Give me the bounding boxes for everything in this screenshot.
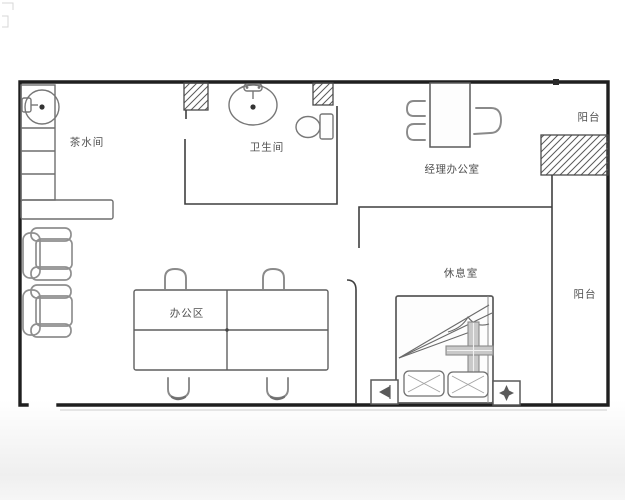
floor-plan-canvas: 茶水间 卫生间 经理办公室 阳台 休息室 阳台 办公区 [0,0,625,500]
chair-icon [165,269,186,289]
chair-icon [267,378,288,398]
office-table [134,290,328,370]
armchair [23,228,72,280]
wall-hatch-block [541,135,608,175]
nightstand-left [371,380,398,404]
scan-artifact [2,3,13,27]
wall-hatch-block [184,83,208,110]
chair-icon [168,378,189,398]
room-label-office-area: 办公区 [170,306,205,321]
lounge-top-wall [359,207,552,248]
chair-icon [407,101,425,116]
chair-icon [474,108,501,134]
chair-icon [407,124,425,140]
lounge-left-wall [347,280,356,404]
room-label-lounge: 休息室 [444,266,479,281]
room-label-balcony-right: 阳台 [574,287,597,302]
bed [396,296,493,403]
wall-hatch-block [313,83,333,105]
room-label-balcony-top: 阳台 [578,110,601,125]
nightstand-right [493,381,520,405]
floor-plan-drawing [0,0,625,500]
wash-basin-icon [229,84,277,125]
wall-hatch-blocks [184,83,608,175]
wall-joint-mark [553,79,559,85]
sink-icon [22,90,59,124]
chair-icon [263,269,284,289]
room-label-bathroom: 卫生间 [250,140,285,155]
room-label-tea-room: 茶水间 [70,135,105,150]
manager-desk [430,83,470,147]
toilet-icon [296,114,333,139]
room-label-manager-office: 经理办公室 [425,162,480,177]
inner-walls [185,106,552,404]
armchair [23,285,72,337]
